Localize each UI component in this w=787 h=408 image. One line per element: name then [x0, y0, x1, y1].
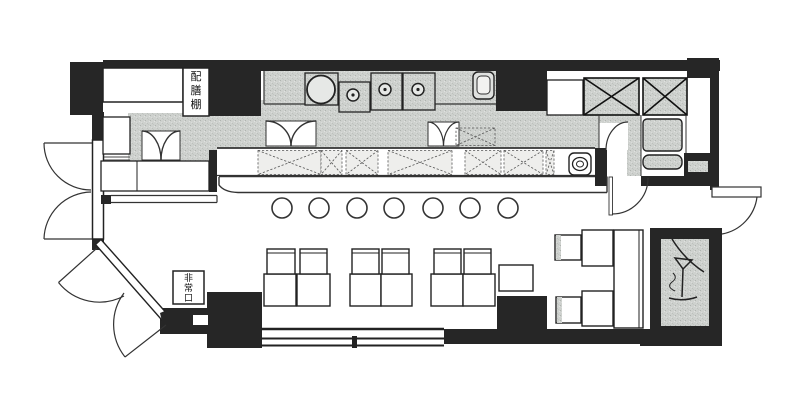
svg-text:配: 配 [191, 70, 202, 83]
svg-text:非: 非 [184, 272, 193, 283]
svg-text:膳: 膳 [191, 83, 202, 97]
svg-text:棚: 棚 [191, 97, 202, 111]
svg-text:口: 口 [184, 293, 193, 303]
svg-text:常: 常 [184, 282, 193, 293]
